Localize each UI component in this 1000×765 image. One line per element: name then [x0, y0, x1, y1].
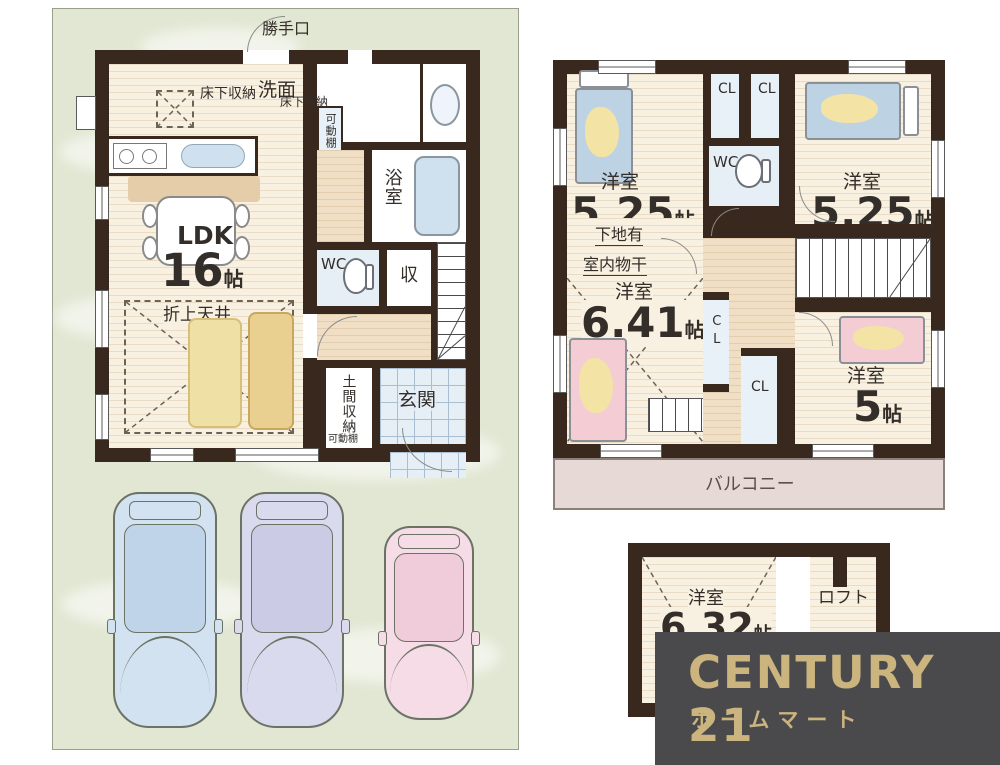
window	[553, 335, 567, 393]
car-hood-line	[247, 636, 337, 701]
ldk-size: 16帖	[161, 246, 244, 296]
floor2-plan: CL CL WC 洋室 5.25帖 洋室 5.25帖	[553, 60, 945, 458]
car-mirror	[234, 619, 243, 634]
bathroom: 浴室	[372, 150, 466, 242]
storage-label: 収	[400, 266, 418, 286]
ldk-unit: 帖	[224, 267, 244, 291]
stove-icon	[113, 143, 167, 169]
car-rear-window	[129, 501, 201, 520]
car-mirror	[214, 619, 223, 634]
wall-segment	[777, 348, 795, 444]
wc-room-1f: WC	[317, 250, 379, 306]
car-lavender	[240, 492, 344, 728]
car-roof-glass	[394, 553, 465, 642]
wall-segment	[833, 543, 847, 587]
toilet-tank-icon	[365, 264, 374, 290]
blanket-icon	[821, 94, 878, 124]
wc-label-1f: WC	[321, 256, 338, 273]
century21-logo: CENTURY 21 ホームマート	[655, 632, 1000, 765]
burner-icon	[119, 149, 134, 164]
car-pink	[384, 526, 474, 720]
closet-top-2: CL	[751, 74, 779, 138]
cl-label: CL	[751, 380, 767, 395]
underfloor-storage-label: 床下収納	[200, 86, 230, 102]
window	[235, 448, 319, 462]
stairs-diagonal	[796, 239, 930, 297]
hall-upper	[317, 150, 364, 242]
bathtub-icon	[414, 156, 460, 236]
window-opening	[348, 50, 372, 64]
cl-label: CL	[758, 82, 774, 97]
note-line2: 室内物干	[583, 256, 647, 276]
bed-icon	[569, 338, 627, 442]
headboard-icon	[903, 86, 919, 136]
bed-icon	[805, 82, 901, 140]
cl-label: CL	[718, 82, 734, 97]
balcony: バルコニー	[553, 458, 945, 510]
car-blue	[113, 492, 217, 728]
staircase-1f	[437, 242, 466, 360]
closet-top-1: CL	[711, 74, 739, 138]
bed-icon	[839, 316, 925, 364]
bathroom-label: 浴室	[382, 168, 402, 206]
window	[848, 60, 906, 74]
balcony-label: バルコニー	[705, 475, 795, 495]
window	[931, 140, 945, 198]
closet-low: CL	[741, 348, 777, 444]
staircase-2f	[795, 238, 931, 298]
car-roof-glass	[251, 524, 333, 633]
loft-label: ロフト	[818, 589, 869, 608]
burner-icon	[142, 149, 157, 164]
car-hood-line	[390, 644, 467, 697]
wc-label-2f: WC	[713, 154, 730, 171]
underfloor-storage-box	[156, 90, 194, 128]
toilet-icon	[735, 154, 763, 188]
window	[931, 330, 945, 388]
window	[95, 394, 109, 440]
stairs-winder-lines	[438, 243, 465, 359]
window	[598, 60, 656, 74]
blanket-icon	[579, 358, 612, 413]
doma-storage-label: 土間収納	[340, 374, 355, 434]
movable-shelf-label-2: 可動棚	[328, 434, 358, 445]
doma-storage: 土間収納 可動棚	[326, 368, 372, 448]
car-mirror	[378, 631, 387, 646]
underfloor-storage-label-2: 床下収納	[280, 96, 306, 110]
car-hood-line	[120, 636, 210, 701]
blanket-icon	[585, 107, 618, 158]
wall-segment	[739, 74, 751, 138]
window	[95, 186, 109, 220]
wall-segment	[303, 306, 431, 314]
balcony-door	[812, 444, 874, 458]
entrance-label: 玄関	[398, 390, 436, 411]
sink-icon	[430, 84, 460, 126]
door-opening	[303, 314, 317, 358]
chair-icon	[142, 236, 158, 260]
window	[553, 128, 567, 186]
wall-segment	[703, 138, 795, 146]
toilet-tank-icon	[761, 159, 771, 183]
wall-segment	[303, 360, 466, 368]
car-mirror	[471, 631, 480, 646]
car-roof-glass	[124, 524, 206, 633]
chair-icon	[234, 204, 250, 228]
chair-icon	[142, 204, 158, 228]
window	[95, 290, 109, 348]
blanket-icon	[853, 326, 904, 350]
storage-closet: 収	[387, 250, 431, 306]
store-name: ホームマート	[691, 704, 864, 734]
wall-segment	[379, 250, 387, 314]
wall-segment	[779, 74, 795, 224]
back-door-opening	[243, 50, 289, 64]
note-line1: 下地有	[595, 226, 643, 246]
bed-icon	[575, 88, 633, 184]
car-mirror	[341, 619, 350, 634]
dashed-x	[158, 92, 192, 126]
bay-window	[76, 96, 96, 130]
rug-icon	[188, 318, 242, 428]
cl-label: CL	[709, 314, 723, 350]
car-mirror	[107, 619, 116, 634]
brand-name: CENTURY 21	[688, 646, 1000, 752]
car-rear-window	[398, 534, 460, 549]
room-br-size: 5帖	[853, 384, 902, 430]
back-door-label: 勝手口	[262, 20, 310, 38]
kitchen-sink-icon	[181, 144, 245, 168]
wall-segment	[795, 298, 945, 312]
vanity-counter	[420, 64, 466, 142]
closet-mid: CL	[703, 292, 729, 392]
kitchen-counter	[106, 136, 258, 176]
car-rear-window	[256, 501, 328, 520]
flyer-page: 可動棚 浴室 WC 収	[0, 0, 1000, 765]
door-arc	[711, 208, 739, 236]
movable-shelf-label: 可動棚	[324, 113, 336, 149]
wc-room-2f: WC	[709, 146, 779, 206]
floor1-plan: 可動棚 浴室 WC 収	[95, 50, 480, 462]
wall-segment	[372, 368, 380, 448]
balcony-door	[600, 444, 662, 458]
window	[150, 448, 194, 462]
wall-segment	[364, 150, 372, 242]
wall-segment	[347, 142, 466, 150]
sofa-icon	[248, 312, 294, 430]
